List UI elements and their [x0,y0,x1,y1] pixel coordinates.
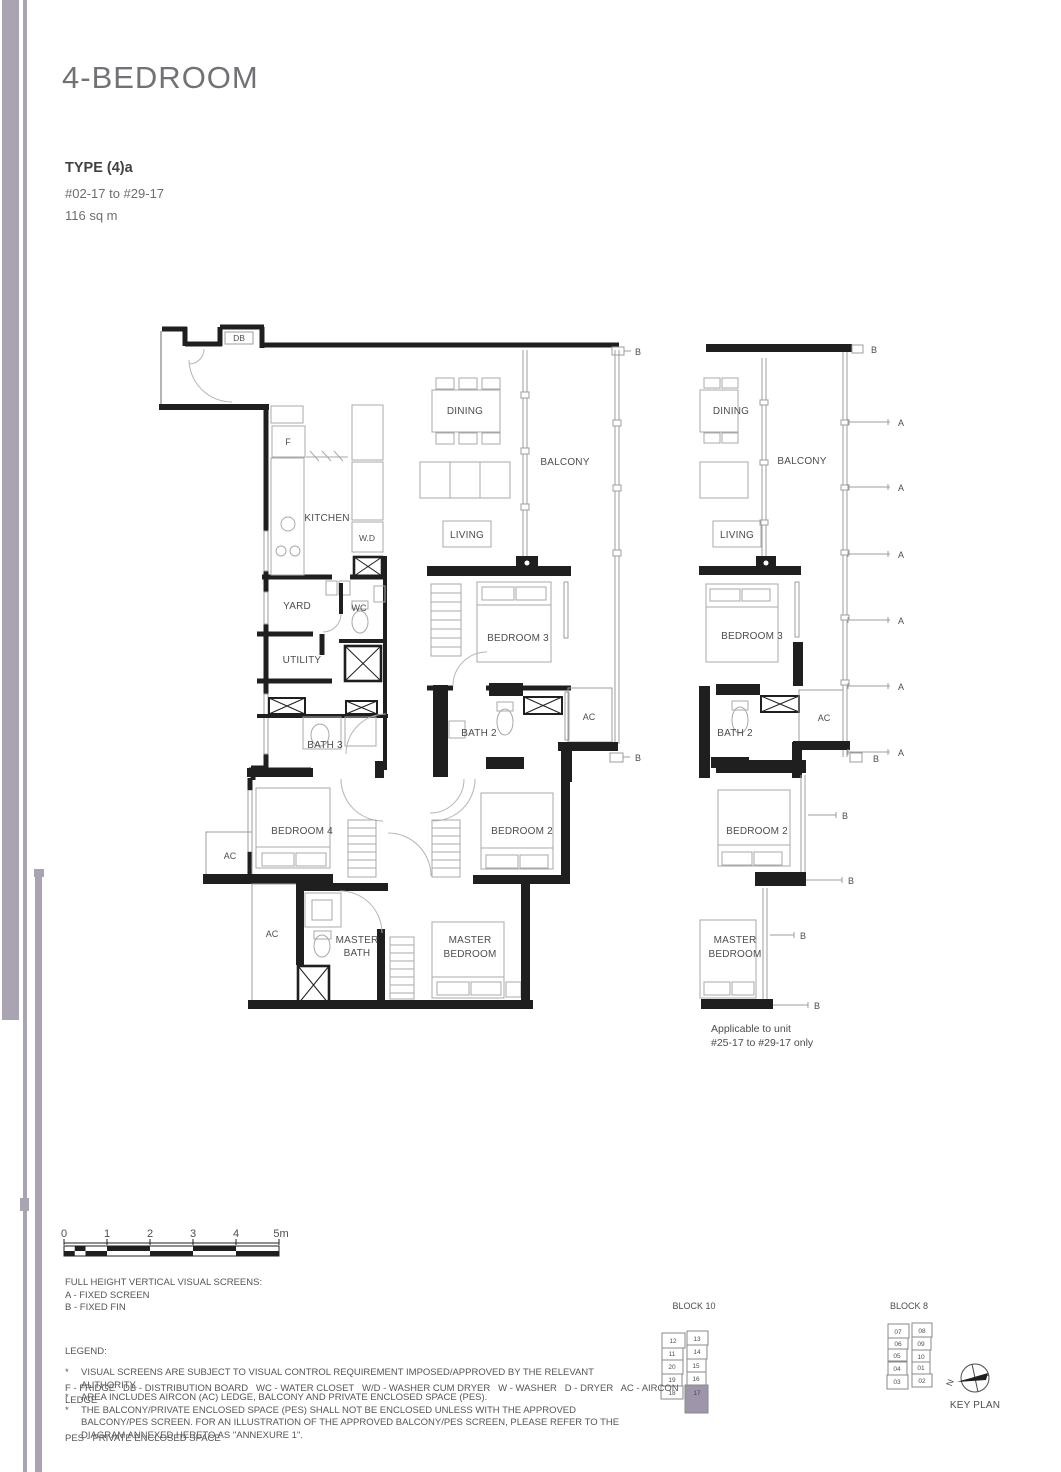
scale-tick-2: 2 [147,1228,153,1240]
yard-wc-utility: YARD WC UTILITY [257,556,387,770]
scale-bar: 0 1 2 3 4 5m [61,1228,289,1256]
block10-unit: 13 [693,1336,701,1343]
bedroom2-label: BEDROOM 2 [491,826,553,837]
variant-balcony-label: BALCONY [777,456,826,467]
footnote-text: THE BALCONY/PRIVATE ENCLOSED SPACE (PES)… [81,1405,641,1443]
block8-unit: 09 [917,1341,925,1348]
footnote-row: * THE BALCONY/PRIVATE ENCLOSED SPACE (PE… [65,1405,650,1443]
bedroom-3: BEDROOM 3 [427,566,571,688]
master-bedroom: MASTER BEDROOM [248,833,533,1009]
visual-screens-a: A - FIXED SCREEN [65,1290,262,1303]
marker-a-label: A [898,550,904,560]
block8-unit: 08 [918,1328,926,1335]
variant-note-line2: #25-17 to #29-17 only [711,1037,814,1049]
scale-tick-1: 1 [104,1228,110,1240]
block8-unit: 03 [893,1379,901,1386]
yard-label: YARD [283,601,311,612]
marker-b-label: B [848,876,854,886]
marker-b-label: B [873,754,879,764]
variant-bedroom2-label: BEDROOM 2 [726,826,788,837]
kitchen: F W.D KITCHEN [262,405,386,580]
key-plan-block8: BLOCK 8 07 08 06 09 05 10 04 01 03 02 [887,1301,932,1389]
marker-b-label: B [814,1001,820,1011]
dining-label: DINING [447,406,483,417]
bedroom4-label: BEDROOM 4 [271,826,333,837]
marker-b-label: B [635,753,641,763]
wc-label: WC [352,603,367,613]
bedroom3-label: BEDROOM 3 [487,633,549,644]
north-label: N [944,1378,956,1388]
block8-unit: 02 [918,1378,926,1385]
marker-a-group: A A A A A A [848,418,904,758]
bath3-label: BATH 3 [307,740,343,751]
variant-ac-label: AC [818,713,831,723]
block10-unit: 14 [693,1349,701,1356]
variant-living-label: LIVING [720,530,754,541]
footnote-marker: * [65,1405,81,1443]
block8-unit: 04 [893,1366,901,1373]
variant-bath2-label: BATH 2 [717,728,753,739]
block8-unit: 05 [893,1353,901,1360]
key-plan: BLOCK 10 12 13 11 14 20 15 19 16 18 17 B… [661,1301,1000,1413]
scale-tick-4: 4 [233,1228,239,1240]
ac-label-strip: AC [266,929,279,939]
kitchen-label: KITCHEN [304,513,349,524]
block10-unit: 15 [692,1363,700,1370]
key-plan-caption: KEY PLAN [950,1400,1000,1411]
marker-a-label: A [898,483,904,493]
master-bath: AC MASTER BATH [252,883,388,1005]
legend-title: LEGEND: [65,1346,685,1358]
entry-foyer: DB [159,327,619,407]
utility-label: UTILITY [283,655,322,666]
block8-unit: 06 [894,1341,902,1348]
marker-b-label: B [635,347,641,357]
block8-unit: 07 [894,1329,902,1336]
scale-tick-5: 5m [273,1228,288,1240]
footnote-text: VISUAL SCREENS ARE SUBJECT TO VISUAL CON… [81,1367,641,1392]
footnote-marker: * [65,1367,81,1392]
bedroom-4: BEDROOM 4 AC [203,761,384,884]
bath2-label: BATH 2 [461,728,497,739]
footnote-row: * AREA INCLUDES AIRCON (AC) LEDGE, BALCO… [65,1392,650,1405]
main-plan: DB B F W.D KITCHEN [159,327,641,1009]
fridge-label: F [285,437,291,447]
db-label: DB [233,333,245,343]
visual-screens-b: B - FIXED FIN [65,1302,262,1315]
marker-a-label: A [898,418,904,428]
marker-b-top: B [612,347,641,357]
variant-master-label-2: BEDROOM [708,949,761,960]
master-bedroom-label-1: MASTER [449,935,492,946]
footnote-row: * VISUAL SCREENS ARE SUBJECT TO VISUAL C… [65,1367,650,1392]
variant-bedroom3-label: BEDROOM 3 [721,631,783,642]
visual-screens-note: FULL HEIGHT VERTICAL VISUAL SCREENS: A -… [65,1277,262,1315]
variant-note-line1: Applicable to unit [711,1023,791,1035]
scale-tick-0: 0 [61,1228,67,1240]
block10-unit-17: 17 [693,1390,701,1397]
footnote-text: AREA INCLUDES AIRCON (AC) LEDGE, BALCONY… [81,1392,641,1405]
master-bath-label-1: MASTER [336,935,379,946]
marker-a-label: A [898,748,904,758]
bedroom-2: BEDROOM 2 [432,750,570,884]
master-bath-label-2: BATH [344,948,371,959]
footnotes: * VISUAL SCREENS ARE SUBJECT TO VISUAL C… [65,1367,650,1443]
marker-a-label: A [898,682,904,692]
scale-tick-3: 3 [190,1228,196,1240]
compass: N KEY PLAN [944,1364,1000,1411]
balcony-label: BALCONY [540,457,589,468]
bath-3: BATH 3 [249,684,388,780]
ac-label: AC [583,712,596,722]
block8-title: BLOCK 8 [890,1301,928,1311]
marker-b-label: B [842,811,848,821]
marker-b-label: B [871,345,877,355]
footnote-marker: * [65,1392,81,1405]
floor-plan-drawing: DB B F W.D KITCHEN [0,0,1061,1472]
variant-dining-label: DINING [713,406,749,417]
ac-label-outer: AC [224,851,237,861]
visual-screens-title: FULL HEIGHT VERTICAL VISUAL SCREENS: [65,1277,262,1290]
block8-unit: 10 [917,1354,925,1361]
variant-plan: B DINING BALCONY LIVING BEDROOM 3 [699,344,904,1049]
marker-a-label: A [898,616,904,626]
block10-title: BLOCK 10 [672,1301,715,1311]
variant-master-label-1: MASTER [714,935,757,946]
block8-unit: 01 [917,1365,925,1372]
washer-dryer-label: W.D [359,533,375,543]
living-label: LIVING [450,530,484,541]
marker-b-label: B [800,931,806,941]
master-bedroom-label-2: BEDROOM [443,949,496,960]
block10-unit: 16 [692,1376,700,1383]
